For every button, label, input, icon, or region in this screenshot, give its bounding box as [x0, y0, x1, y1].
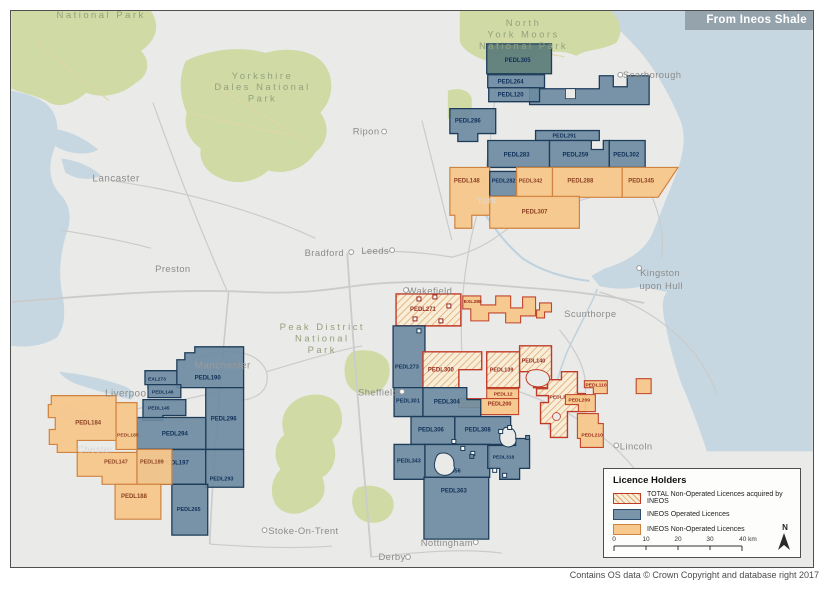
- marker: [508, 426, 512, 430]
- city-label: Lancaster: [92, 173, 140, 184]
- city-label: upon Hull: [639, 281, 683, 292]
- licence-label: PEDL300: [428, 368, 455, 374]
- licence-label: PEDL306: [418, 427, 445, 433]
- marker: [461, 446, 465, 450]
- licence-label: PEDL307: [522, 209, 549, 215]
- licence-label: PEDL146: [152, 390, 174, 396]
- licence-label: PEDL296: [211, 417, 238, 423]
- city-label: Scunthorpe: [564, 309, 616, 320]
- licence-label: PEDL301: [396, 399, 420, 405]
- licence-label: PEDL302: [613, 152, 640, 158]
- map-frame: PEDL305PEDL264PEDL120PEDL286PEDL291PEDL2…: [10, 10, 814, 568]
- city-label: Ripon: [353, 127, 380, 138]
- licence-label: PEDL294: [162, 431, 189, 437]
- city-label: Kingston: [640, 268, 680, 279]
- licence-label: PEDL184: [75, 421, 102, 427]
- licence-label: PEDL304: [434, 400, 461, 406]
- licence-label: PEDL273: [395, 365, 419, 371]
- city-label: York: [477, 195, 497, 206]
- city-dot: [614, 443, 619, 448]
- licence-label: PEDL283: [504, 152, 531, 158]
- city-dot: [349, 250, 354, 255]
- city-dot: [382, 129, 387, 134]
- city-label: Leeds: [361, 246, 389, 257]
- cutout: [434, 453, 454, 475]
- scale-tick: 40 km: [739, 536, 757, 543]
- park-label: National Park: [57, 11, 146, 21]
- licence-label: PEDL318: [493, 454, 515, 460]
- licence-label: PEDL210: [581, 432, 603, 438]
- legend-row-operated: INEOS Operated Licences: [613, 509, 800, 520]
- licence-label: PEDL288: [567, 178, 594, 184]
- legend-label: TOTAL Non-Operated Licences acquired by …: [647, 491, 800, 505]
- marker: [493, 468, 497, 472]
- licence-label: PEDL148: [454, 178, 481, 184]
- licence-label: PEDL189: [140, 459, 164, 465]
- cutout: [552, 413, 560, 421]
- licence-label: PEDL271: [410, 307, 437, 313]
- scale-tick: 20: [674, 536, 682, 543]
- marker: [417, 297, 421, 301]
- licence-label: PEDL185: [117, 432, 139, 438]
- city-dot: [400, 389, 405, 394]
- city-label: Stoke-On-Trent: [268, 526, 338, 537]
- city-label: Chester: [77, 444, 113, 455]
- scale-bar: 0 10 20 30 40 km: [610, 532, 770, 554]
- scale-bar-svg: 0 10 20 30 40 km: [610, 532, 770, 554]
- marker: [470, 454, 474, 458]
- operated-swatch: [613, 509, 641, 520]
- marker: [452, 439, 456, 443]
- licence-label: PEDL190: [195, 376, 222, 382]
- licence-area: [636, 379, 651, 394]
- licence-label: PEDL209: [568, 398, 590, 404]
- licence-label: PEDL286: [455, 119, 482, 125]
- marker: [439, 319, 443, 323]
- marker: [526, 435, 530, 439]
- city-dot: [262, 528, 267, 533]
- city-label: Liverpool: [105, 389, 149, 400]
- city-label: Scarborough: [623, 70, 682, 81]
- marker: [447, 304, 451, 308]
- city-label: Bradford: [305, 248, 344, 259]
- credit-text: From Ineos Shale: [706, 14, 807, 26]
- marker: [499, 429, 503, 433]
- north-arrow: N: [776, 524, 794, 554]
- north-label: N: [776, 524, 794, 532]
- credit-banner: From Ineos Shale: [685, 11, 813, 30]
- north-arrow-icon: [776, 532, 792, 552]
- legend: Licence Holders TOTAL Non-Operated Licen…: [603, 468, 801, 558]
- licence-label: PEDL282: [492, 178, 516, 184]
- licence-label: PEDL343: [397, 458, 421, 464]
- licence-pedl185: [116, 403, 137, 450]
- ineos-shale-licence-map-page: PEDL305PEDL264PEDL120PEDL286PEDL291PEDL2…: [0, 0, 833, 590]
- marker: [503, 473, 507, 477]
- licence-label: PEDL120: [498, 93, 525, 99]
- licence-label: PEDL12: [494, 392, 513, 398]
- licence-label: PEDL259: [562, 152, 589, 158]
- licence-label: PEDL139: [490, 368, 514, 374]
- city-label: Preston: [155, 264, 190, 275]
- licence-label: PEDL308: [465, 427, 492, 433]
- licence-label: PEDL291: [552, 134, 576, 140]
- marker: [413, 317, 417, 321]
- cutout: [565, 89, 575, 99]
- licence-label: EXL273: [148, 377, 166, 383]
- licence-pedl188: [115, 484, 161, 519]
- legend-title: Licence Holders: [613, 475, 800, 486]
- city-label: Derby: [378, 552, 405, 563]
- licence-label: PEDL342: [519, 178, 543, 184]
- licence-label: PEDL200: [488, 402, 512, 408]
- scale-tick: 10: [642, 536, 650, 543]
- city-label: Manchester: [195, 361, 251, 372]
- city-dot: [390, 248, 395, 253]
- city-label: Wakefield: [408, 286, 453, 297]
- licence-label: PEDL363: [441, 488, 468, 494]
- marker: [417, 329, 421, 333]
- licence-label: PEDL293: [210, 476, 234, 482]
- licence-label: PEDL110: [585, 383, 607, 389]
- city-label: Lincoln: [620, 441, 653, 452]
- licence-label: PEDL305: [505, 58, 532, 64]
- licence-label: EXL288: [464, 299, 482, 305]
- licence-label: PEDL264: [498, 80, 525, 86]
- total-swatch: [613, 493, 641, 504]
- licence-label: PEDL265: [177, 507, 201, 513]
- licence-pedl363: [424, 477, 489, 539]
- licence-pedl189: [137, 449, 172, 484]
- licence-label: PEDL345: [628, 178, 655, 184]
- scale-tick: 30: [706, 536, 714, 543]
- city-label: Nottingham: [421, 538, 473, 549]
- licence-label: PEDL147: [104, 459, 128, 465]
- legend-row-total: TOTAL Non-Operated Licences acquired by …: [613, 491, 800, 505]
- city-label: Sheffield: [358, 388, 398, 399]
- licence-label: PEDL145: [148, 406, 170, 412]
- cutout: [526, 370, 550, 387]
- licence-label: PEDL140: [522, 359, 546, 365]
- city-dot: [406, 555, 411, 560]
- licence-label: PEDL188: [121, 494, 148, 500]
- copyright-note: Contains OS data © Crown Copyright and d…: [570, 570, 819, 580]
- scale-tick: 0: [612, 536, 616, 543]
- city-dot: [473, 540, 478, 545]
- licence-pedl273: [393, 326, 425, 388]
- legend-label: INEOS Operated Licences: [647, 511, 730, 518]
